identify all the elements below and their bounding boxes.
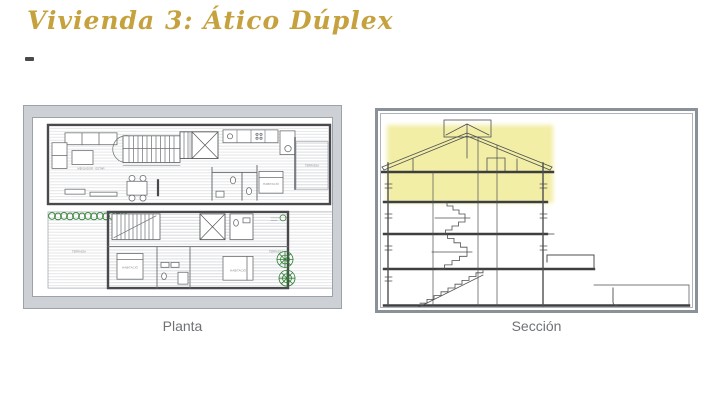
seccion-caption: Sección bbox=[375, 318, 698, 334]
planta-caption: Planta bbox=[23, 318, 342, 334]
planta-frame-inner: MENJADOR - ESTAR bbox=[32, 117, 333, 297]
planta-panel: MENJADOR - ESTAR bbox=[23, 105, 342, 309]
toilet-2 bbox=[246, 188, 251, 195]
slide-canvas: Vivienda 3: Ático Dúplex bbox=[0, 0, 718, 403]
room-label-terrace-upper: TERRASSA bbox=[305, 163, 319, 167]
low-cabinet bbox=[65, 189, 85, 194]
elevator-shaft-lower bbox=[200, 214, 225, 240]
floor-plan-upper: MENJADOR - ESTAR bbox=[48, 125, 330, 204]
seccion-drawing bbox=[381, 114, 692, 307]
stair-ground-flight bbox=[420, 269, 483, 303]
boiler bbox=[285, 145, 291, 151]
seccion-panel bbox=[375, 108, 698, 313]
stray-mark bbox=[25, 57, 34, 61]
sink bbox=[227, 134, 232, 139]
room-label-terrace-lower-left: TERRASSA bbox=[72, 250, 86, 254]
room-label-bedroom-upper: HABITACIÓ bbox=[263, 181, 280, 186]
annex-hook-mark bbox=[613, 288, 617, 306]
room-label-bedroom-lower-right: HABITACIÓ bbox=[230, 267, 247, 272]
stair-flight-2b bbox=[437, 252, 467, 269]
stair-flight-2a bbox=[441, 234, 467, 252]
seccion-frame-inner bbox=[380, 113, 693, 308]
slide-title: Vivienda 3: Ático Dúplex bbox=[27, 6, 394, 35]
stair-flight-1a bbox=[441, 202, 465, 218]
planta-drawing: MENJADOR - ESTAR bbox=[33, 118, 332, 296]
stair-flight-1b bbox=[439, 218, 465, 234]
sofa bbox=[65, 133, 117, 145]
washbasin bbox=[216, 191, 224, 197]
ground-floor-annex bbox=[547, 255, 689, 306]
toilet bbox=[230, 177, 235, 184]
tv-bench bbox=[90, 192, 117, 196]
stair-lower-plan bbox=[112, 214, 160, 240]
elevator-shaft bbox=[180, 132, 218, 159]
basin-lower bbox=[243, 218, 250, 223]
floor-plan-lower: TERRASSA bbox=[48, 212, 332, 288]
toilet-lower bbox=[234, 219, 239, 226]
stairs-section bbox=[417, 202, 483, 307]
room-label-bedroom-lower-left: HABITACIÓ bbox=[122, 264, 139, 269]
stair-upper-plan bbox=[113, 136, 180, 163]
coffee-table bbox=[72, 151, 93, 165]
bathroom-small-lower bbox=[230, 214, 253, 240]
room-label-living: MENJADOR - ESTAR bbox=[77, 166, 104, 170]
